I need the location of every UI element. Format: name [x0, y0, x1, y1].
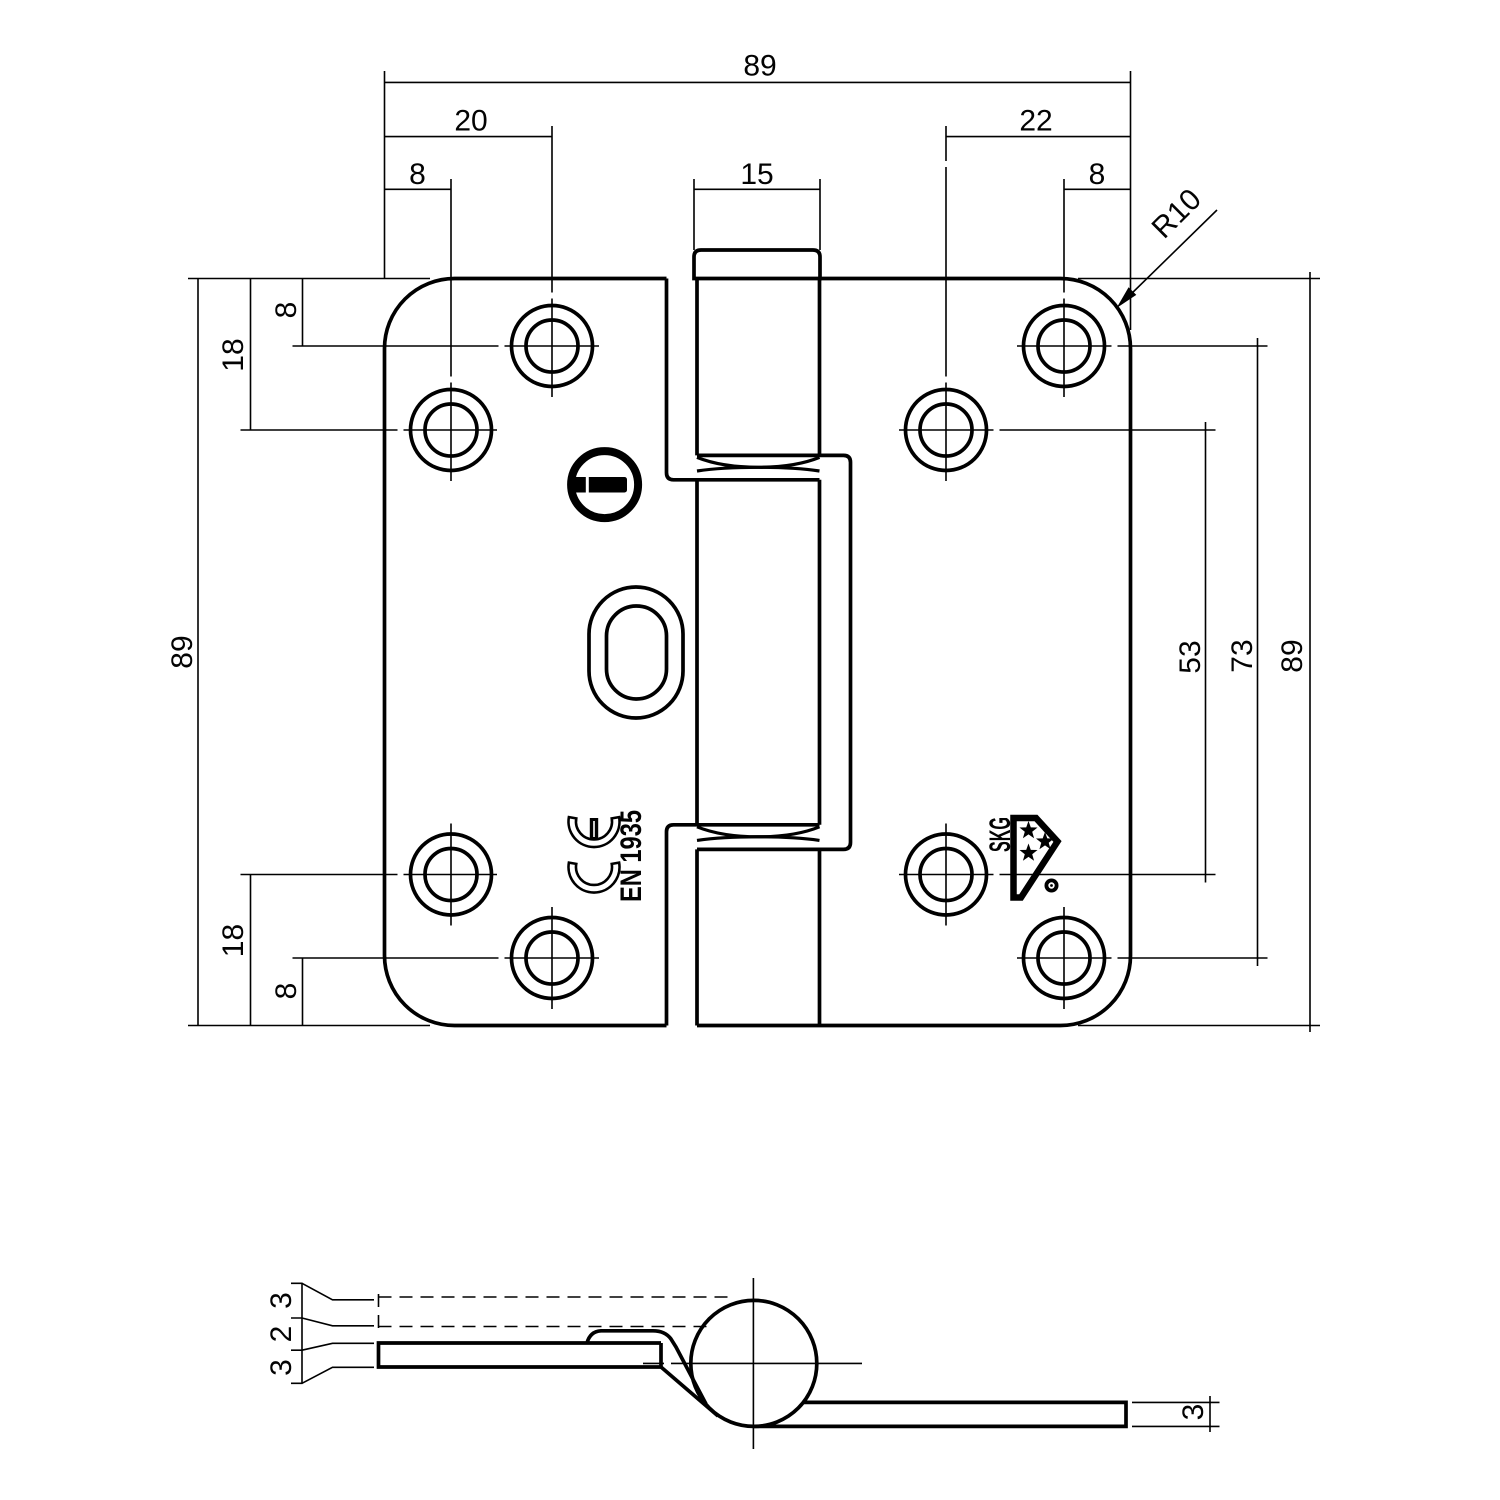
svg-text:89: 89	[166, 635, 199, 668]
svg-text:8: 8	[270, 302, 303, 319]
svg-text:8: 8	[409, 158, 426, 191]
svg-text:EN 1935: EN 1935	[615, 810, 648, 902]
svg-text:2: 2	[265, 1326, 298, 1343]
svg-text:3: 3	[1177, 1404, 1210, 1421]
svg-text:8: 8	[270, 983, 303, 1000]
svg-text:3: 3	[265, 1359, 298, 1376]
svg-text:18: 18	[217, 338, 250, 371]
svg-text:R10: R10	[1146, 183, 1208, 245]
svg-text:89: 89	[1276, 639, 1309, 672]
svg-text:20: 20	[454, 105, 487, 138]
svg-text:8: 8	[1089, 158, 1106, 191]
svg-text:18: 18	[217, 924, 250, 957]
svg-text:22: 22	[1019, 105, 1052, 138]
svg-text:73: 73	[1226, 639, 1259, 672]
svg-text:SKG: SKG	[984, 817, 1017, 852]
svg-text:89: 89	[743, 50, 776, 83]
svg-text:53: 53	[1174, 640, 1207, 673]
svg-text:3: 3	[265, 1292, 298, 1309]
svg-text:15: 15	[740, 158, 773, 191]
